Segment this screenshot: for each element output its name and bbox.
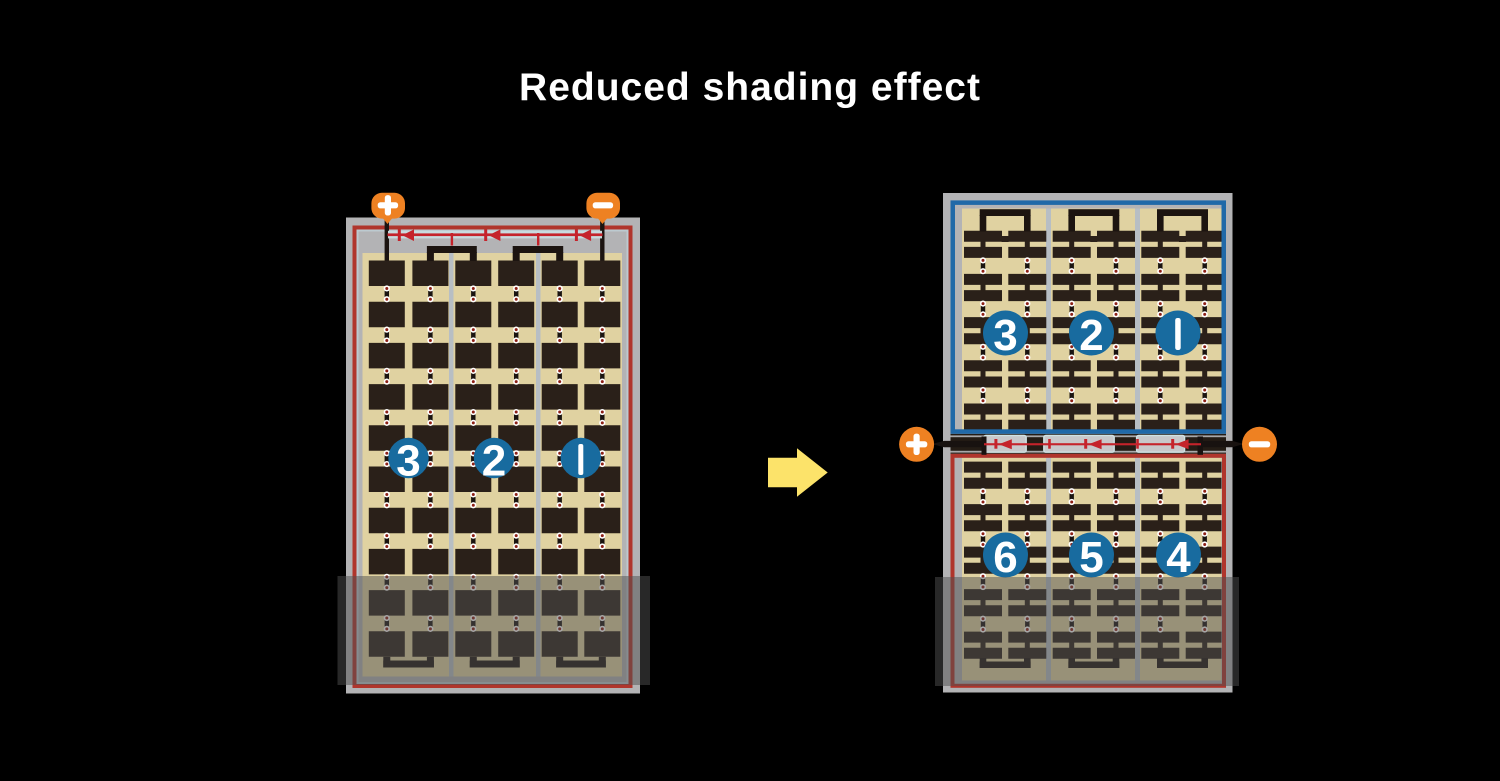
svg-text:2: 2: [1079, 311, 1103, 360]
svg-text:Reduced shading effect: Reduced shading effect: [519, 66, 981, 109]
svg-text:2: 2: [482, 437, 506, 486]
svg-text:5: 5: [1079, 533, 1103, 582]
svg-text:6: 6: [993, 533, 1017, 582]
svg-text:4: 4: [1166, 533, 1191, 582]
svg-text:3: 3: [396, 437, 420, 486]
svg-text:3: 3: [993, 311, 1017, 360]
